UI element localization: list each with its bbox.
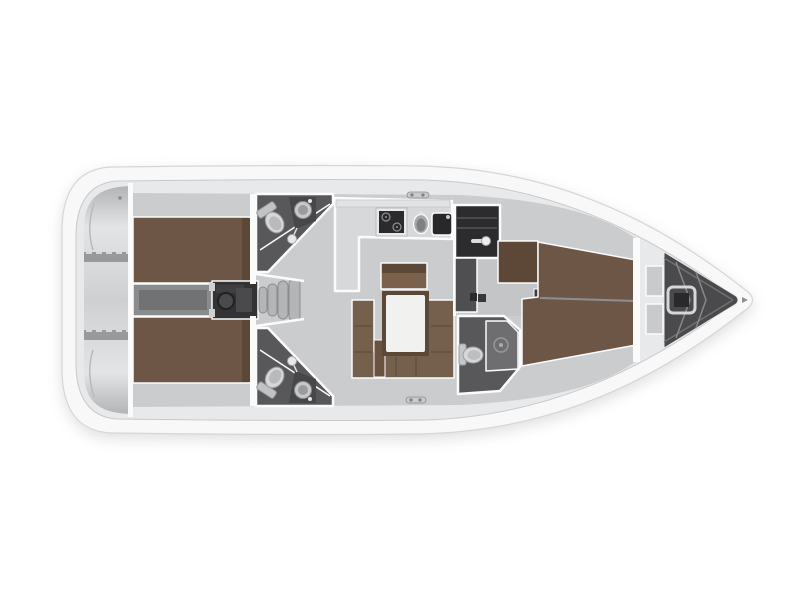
berth-backrest-port [242, 318, 250, 382]
boat-plan [0, 0, 800, 600]
windlass-core [674, 293, 689, 307]
galley-locker-strip [336, 200, 450, 207]
berth-backrest-starboard [242, 218, 250, 282]
engine-compartment [209, 281, 258, 319]
cleat-port [406, 397, 426, 403]
bow-panel-bottom [646, 304, 663, 334]
door-handle-knob [482, 237, 491, 246]
step-3 [278, 281, 288, 319]
corridor-well [139, 290, 207, 310]
bow-panel-top [646, 266, 663, 296]
aft-berth-starboard [133, 217, 250, 283]
square-sink [432, 213, 452, 235]
stove [376, 208, 407, 236]
cleat-starboard [407, 192, 429, 198]
engine-mount-top [209, 283, 215, 291]
yacht-floorplan-canvas [0, 0, 800, 600]
deck-fitting-dot [118, 196, 122, 200]
step-2 [268, 284, 277, 316]
sideboard-bench [381, 263, 427, 289]
locker-cabinet [455, 205, 500, 258]
engine-flywheel [218, 293, 234, 309]
floor-hatch [478, 294, 486, 302]
step-4 [289, 279, 300, 321]
step-1 [259, 287, 267, 313]
forward-bulkhead [633, 238, 640, 362]
stern-platform [84, 186, 130, 414]
forward-cabin [522, 242, 636, 366]
engine-gearbox [236, 288, 252, 312]
shower-drain-dot [499, 343, 503, 347]
storage-cabinet [455, 258, 477, 312]
engine-corridor [133, 284, 213, 316]
wardrobe [498, 241, 538, 283]
engine-mount-bottom [209, 309, 215, 317]
aft-cabin-port [133, 317, 250, 383]
aft-cabin-starboard [133, 217, 250, 283]
aft-berth-port [133, 317, 250, 383]
forward-berth [522, 242, 636, 366]
salon-table [382, 291, 429, 356]
